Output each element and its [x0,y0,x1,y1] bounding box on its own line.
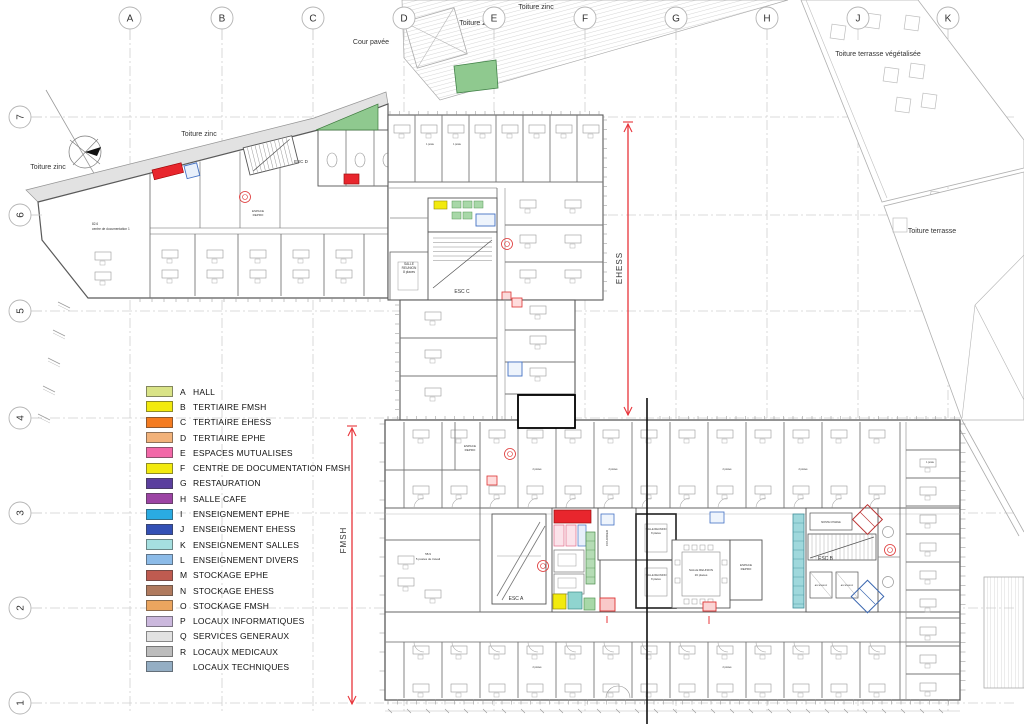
legend-item: NSTOCKAGE EHESS [146,583,350,598]
legend-label: ENSEIGNEMENT SALLES [193,540,299,550]
legend-item: DTERTIAIRE EPHE [146,430,350,445]
zone-arrow-ehess: EHESS [615,122,633,415]
annotation: 8 places [651,577,661,581]
legend-letter: H [180,494,193,504]
annotation: 2 postes [722,666,732,669]
annotation: 2 postes [722,468,732,471]
annotation: Toiture zinc [181,131,217,138]
annotation: ASCENSEUR [815,584,828,587]
annotation: 1 poste [453,143,462,146]
legend-swatch [146,554,173,565]
annotation: ESC C [454,289,470,295]
legend-letter: I [180,509,193,519]
legend-item: IENSEIGNEMENT EPHE [146,506,350,521]
svg-text:B: B [219,14,226,25]
svg-text:1: 1 [16,700,27,706]
legend-letter: F [180,463,193,473]
annotation: 2 postes [532,666,542,669]
legend-label: TERTIAIRE EHESS [193,417,271,427]
legend: AHALLBTERTIAIRE FMSHCTERTIAIRE EHESSDTER… [146,384,350,675]
annotation: ESC D [294,159,309,164]
legend-letter: O [180,601,193,611]
legend-swatch [146,585,173,596]
legend-letter: B [180,402,193,412]
legend-letter: P [180,616,193,626]
legend-swatch [146,661,173,672]
legend-item: OSTOCKAGE FMSH [146,598,350,613]
svg-text:C: C [309,14,316,25]
annotation: Toiture terrasse [908,228,956,235]
annotation: 2 postes [532,468,542,471]
annotation: 1 poste [426,143,435,146]
legend-item: QSERVICES GENERAUX [146,629,350,644]
legend-swatch [146,493,173,504]
legend-swatch [146,524,173,535]
legend-letter: M [180,570,193,580]
svg-text:D: D [400,14,407,25]
legend-letter: R [180,647,193,657]
legend-label: STOCKAGE FMSH [193,601,269,611]
legend-item: KENSEIGNEMENT SALLES [146,537,350,552]
legend-swatch [146,478,173,489]
svg-text:2: 2 [16,605,27,611]
legend-letter: L [180,555,193,565]
grid-bubble-row-3: 3 [9,502,42,524]
annotation: REPRO [465,448,476,452]
grid-bubble-row-2: 2 [9,597,42,619]
legend-label: ENSEIGNEMENT EPHE [193,509,290,519]
legend-label: ENSEIGNEMENT DIVERS [193,555,299,565]
legend-letter: G [180,478,193,488]
legend-item: CTERTIAIRE EHESS [146,415,350,430]
svg-text:F: F [582,14,588,25]
legend-item: PLOCAUX INFORMATIQUES [146,613,350,628]
legend-label: HALL [193,387,215,397]
svg-text:K: K [945,14,952,25]
svg-text:A: A [127,14,134,25]
legend-swatch [146,432,173,443]
legend-label: RESTAURATION [193,478,261,488]
legend-label: STOCKAGE EHESS [193,586,274,596]
legend-item: GRESTAURATION [146,476,350,491]
legend-letter: Q [180,631,193,641]
annotation: SALLE REUNION [646,573,667,577]
svg-text:4: 4 [16,415,27,421]
legend-swatch [146,646,173,657]
legend-item: AHALL [146,384,350,399]
grid-bubble-col-C: C [302,7,324,40]
legend-swatch [146,600,173,611]
legend-swatch [146,539,173,550]
legend-item: JENSEIGNEMENT EHESS [146,522,350,537]
floor-plan-page: EHESSFMSHToiture zincToiture zincCour pa… [0,0,1024,724]
annotation: SALLE REUNION [646,527,667,531]
legend-label: LOCAUX MEDICAUX [193,647,278,657]
svg-text:E: E [491,14,498,25]
legend-letter: E [180,448,193,458]
legend-letter: C [180,417,193,427]
legend-item: MSTOCKAGE EPHE [146,568,350,583]
legend-swatch [146,401,173,412]
legend-letter: D [180,433,193,443]
svg-text:H: H [763,14,770,25]
legend-swatch [146,417,173,428]
annotation: ESC B [818,556,834,562]
annotation: Toiture zinc [518,4,554,11]
grid-bubble-col-G: G [665,7,687,40]
legend-item: HSALLE CAFE [146,491,350,506]
legend-label: SERVICES GENERAUX [193,631,289,641]
annotation: Cour pavée [353,39,389,46]
legend-swatch [146,509,173,520]
legend-label: TERTIAIRE EPHE [193,433,266,443]
svg-text:EHESS: EHESS [615,252,624,284]
legend-letter: N [180,586,193,596]
grid-bubble-col-B: B [211,7,233,40]
legend-label: LOCAUX INFORMATIQUES [193,616,305,626]
legend-label: CENTRE DE DOCUMENTATION FMSH [193,463,350,473]
legend-label: SALLE CAFE [193,494,247,504]
grid-bubble-row-7: 7 [9,106,42,128]
upper-wing [26,92,430,302]
annotation: 2 postes [798,468,808,471]
annotation: 16 places [695,573,708,577]
upper-block [388,111,607,301]
annotation: 82.6 [92,222,98,226]
legend-swatch [146,616,173,627]
grid-bubble-row-5: 5 [9,300,42,322]
annotation: 8 places [403,270,415,274]
svg-text:3: 3 [16,510,27,516]
svg-text:J: J [856,14,861,25]
annotation: REPRO [253,213,264,217]
grid-bubble-row-1: 1 [9,692,42,714]
annotation: 8 places [651,531,661,535]
grid-bubble-col-A: A [119,7,141,40]
annotation: Toiture zinc [30,164,66,171]
annotation: 2 postes [608,468,618,471]
legend-letter: K [180,540,193,550]
legend-item: LENSEIGNEMENT DIVERS [146,552,350,567]
grid-bubble-row-4: 4 [9,407,42,429]
legend-label: STOCKAGE EPHE [193,570,268,580]
legend-letter: J [180,524,193,534]
annotation: centre de documentation 1 [92,227,130,231]
annotation: 58.9 [425,552,431,556]
svg-text:6: 6 [16,212,27,218]
svg-text:G: G [672,14,680,25]
legend-item: BTERTIAIRE FMSH [146,399,350,414]
legend-item: LOCAUX TECHNIQUES [146,659,350,674]
legend-label: ESPACES MUTUALISES [193,448,293,458]
legend-letter: A [180,387,193,397]
annotation: ASCENSEUR [841,584,854,587]
legend-label: LOCAUX TECHNIQUES [193,662,289,672]
grid-bubble-row-6: 6 [9,204,42,226]
svg-text:5: 5 [16,308,27,314]
lower-building [380,416,966,713]
annotation: SALLE REUNION [689,568,713,572]
annotation: MONTE CHARGE [821,521,841,524]
legend-swatch [146,463,173,474]
grid-bubble-col-H: H [756,7,778,40]
legend-swatch [146,570,173,581]
legend-item: EESPACES MUTUALISES [146,445,350,460]
annotation: REPRO [741,567,752,571]
annotation: Toiture terrasse végétalisée [835,51,921,58]
svg-text:7: 7 [16,114,27,120]
legend-swatch [146,631,173,642]
legend-swatch [146,447,173,458]
annotation: 1 poste [926,461,935,464]
legend-item: RLOCAUX MEDICAUX [146,644,350,659]
legend-label: ENSEIGNEMENT EHESS [193,524,296,534]
legend-swatch [146,386,173,397]
annotation: ESC A [509,596,524,602]
legend-label: TERTIAIRE FMSH [193,402,266,412]
annotation: 5 postes de travail [416,557,441,561]
annotation: COURRIER [605,529,609,546]
legend-item: FCENTRE DE DOCUMENTATION FMSH [146,460,350,475]
